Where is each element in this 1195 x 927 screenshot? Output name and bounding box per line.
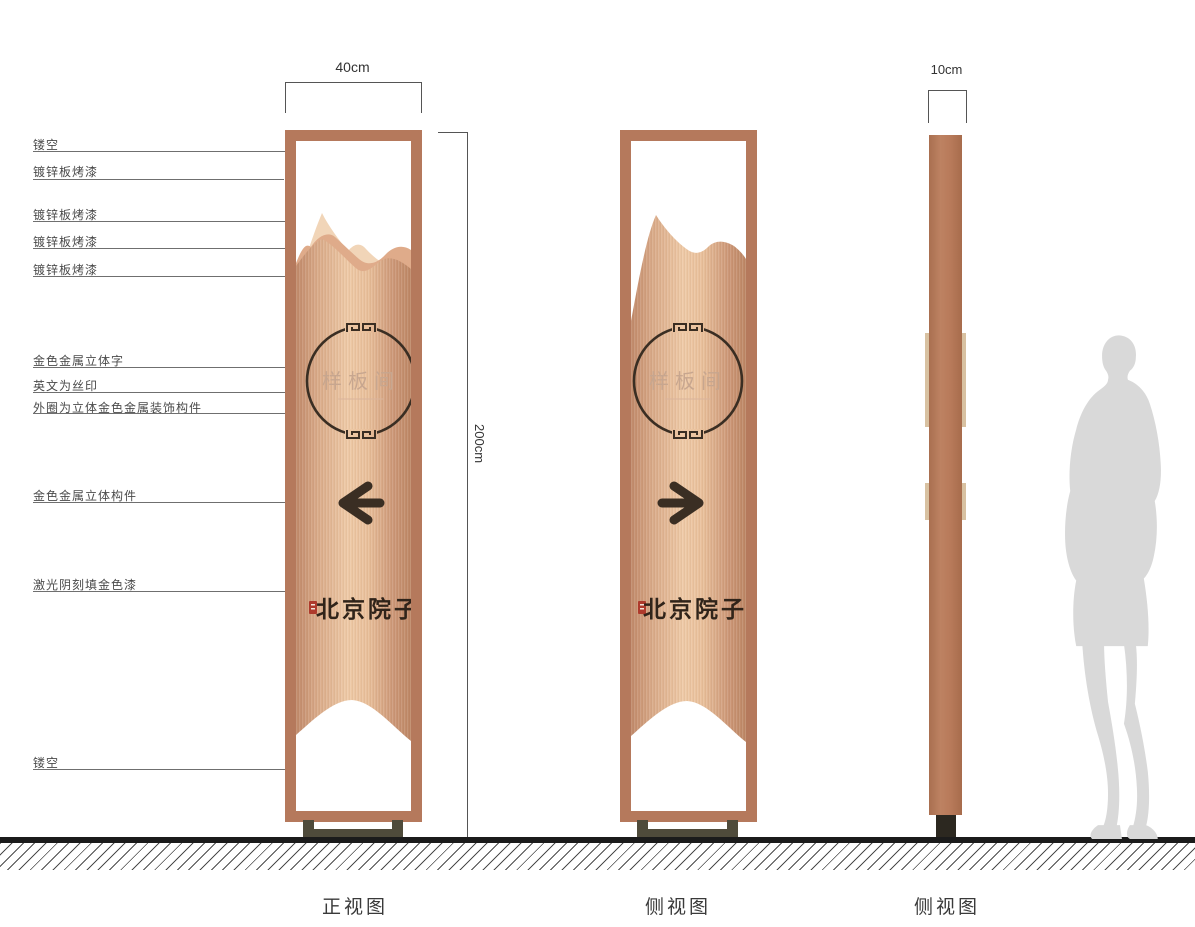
dimension-side-width-bracket	[928, 90, 967, 123]
callout-galvanized-3: 镀锌板烤漆	[33, 233, 98, 250]
view-title-front: 正视图	[322, 892, 388, 919]
profile-arrow-protrusion	[962, 483, 966, 520]
front-panel-artwork: 样板间 北京院子	[296, 141, 411, 811]
silhouette-left-leg	[1082, 642, 1119, 829]
callout-galvanized-4: 镀锌板烤漆	[33, 261, 98, 278]
ground-hatching	[0, 843, 1195, 870]
callout-hollow-bottom: 镂空	[33, 754, 59, 771]
leader-line	[33, 151, 305, 152]
dimension-front-width: 40cm	[285, 59, 420, 75]
view-title-profile: 侧视图	[914, 892, 980, 919]
leader-line	[33, 769, 302, 770]
side-panel-artwork: 样板间 北京院子	[631, 141, 746, 811]
silhouette-torso	[1065, 335, 1161, 646]
brand-text: 北京院子	[643, 596, 746, 622]
leader-line	[33, 413, 322, 414]
leader-line	[33, 221, 326, 222]
signage-design-drawing: 镂空 镀锌板烤漆 镀锌板烤漆 镀锌板烤漆 镀锌板烤漆 金色金属立体字 英文为丝印…	[0, 0, 1195, 927]
view-title-side: 侧视图	[645, 892, 711, 919]
emblem-english-subtext	[338, 398, 384, 400]
profile-view-bar	[929, 135, 962, 815]
dimension-height-line	[438, 132, 468, 839]
silhouette-right-leg	[1124, 644, 1149, 827]
emblem-english-subtext	[665, 398, 711, 400]
emblem-text: 样板间	[322, 370, 400, 393]
dimension-side-width: 10cm	[913, 62, 980, 77]
dimension-front-width-bracket	[285, 82, 422, 113]
silhouette-right-foot	[1127, 825, 1158, 839]
brand-calligraphy: 北京院子	[638, 596, 746, 622]
callout-outer-ring: 外圈为立体金色金属装饰构件	[33, 399, 202, 416]
panel-body-texture	[296, 239, 411, 741]
human-scale-silhouette	[1042, 330, 1182, 842]
dimension-height: 200cm	[472, 424, 487, 463]
emblem-text: 样板间	[649, 370, 727, 393]
callout-galvanized-1: 镀锌板烤漆	[33, 163, 98, 180]
profile-base	[936, 815, 956, 838]
silhouette-left-foot	[1091, 825, 1122, 839]
callout-gold-3d-component: 金色金属立体构件	[33, 487, 137, 504]
callout-laser-engraved: 激光阴刻填金色漆	[33, 576, 137, 593]
leader-line	[33, 276, 293, 277]
callout-galvanized-2: 镀锌板烤漆	[33, 206, 98, 223]
front-view-panel: 样板间 北京院子	[285, 130, 422, 822]
leader-line	[33, 248, 293, 249]
side-view-panel: 样板间 北京院子	[620, 130, 757, 822]
panel-body-texture	[631, 215, 746, 742]
profile-arrow-protrusion	[925, 483, 929, 520]
callout-gold-3d-letters: 金色金属立体字	[33, 352, 124, 369]
profile-emblem-protrusion	[962, 333, 966, 427]
callout-hollow-top: 镂空	[33, 136, 59, 153]
callout-english-silkscreen: 英文为丝印	[33, 377, 98, 394]
callout-label: 镀锌板烤漆	[33, 163, 98, 180]
brand-calligraphy: 北京院子	[309, 596, 411, 622]
leader-line	[33, 179, 284, 180]
brand-text: 北京院子	[316, 596, 411, 622]
profile-emblem-protrusion	[925, 333, 929, 427]
